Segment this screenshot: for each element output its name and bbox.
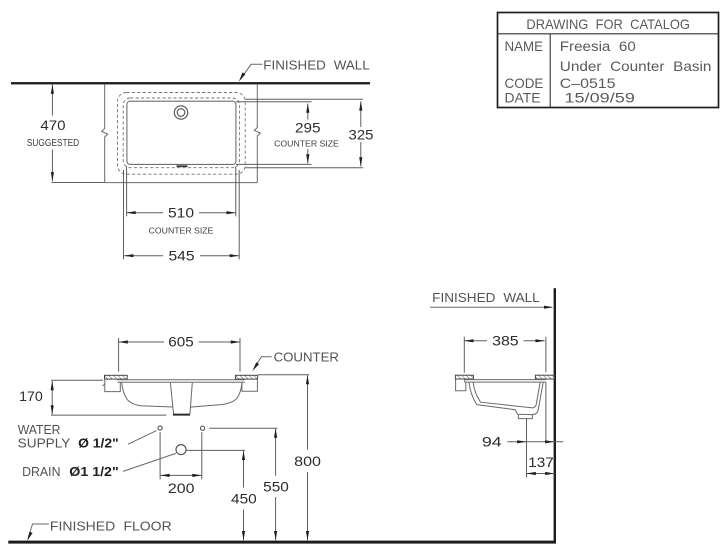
svg-text:450: 450: [231, 491, 257, 506]
svg-text:COUNTER: COUNTER: [274, 350, 339, 365]
svg-text:94: 94: [482, 434, 502, 449]
svg-text:137: 137: [528, 455, 554, 470]
svg-text:Ø1 1/2": Ø1 1/2": [69, 464, 118, 479]
svg-text:470: 470: [40, 118, 65, 133]
svg-text:Freesia 60: Freesia 60: [560, 38, 636, 54]
svg-text:510: 510: [168, 205, 194, 220]
svg-text:DRAIN: DRAIN: [22, 464, 60, 479]
svg-text:Ø 1/2": Ø 1/2": [78, 436, 119, 451]
svg-text:DRAWING FOR CATALOG: DRAWING FOR CATALOG: [526, 16, 690, 32]
svg-text:Under Counter Basin: Under Counter Basin: [560, 58, 712, 74]
svg-text:FINISHED WALL: FINISHED WALL: [263, 57, 369, 72]
svg-text:800: 800: [294, 454, 321, 469]
svg-text:200: 200: [168, 481, 195, 496]
svg-text:325: 325: [349, 127, 374, 142]
svg-text:DATE: DATE: [505, 89, 541, 105]
svg-text:SUPPLY: SUPPLY: [18, 436, 71, 451]
svg-text:FINISHED FLOOR: FINISHED FLOOR: [50, 518, 172, 533]
svg-text:FINISHED WALL: FINISHED WALL: [432, 290, 540, 305]
svg-text:15/09/59: 15/09/59: [564, 89, 635, 105]
svg-text:SUGGESTED: SUGGESTED: [27, 137, 80, 149]
svg-text:NAME: NAME: [505, 38, 544, 54]
svg-text:295: 295: [295, 120, 321, 135]
svg-text:605: 605: [168, 335, 193, 350]
svg-text:170: 170: [19, 389, 43, 404]
svg-text:COUNTER SIZE: COUNTER SIZE: [274, 138, 339, 148]
svg-text:COUNTER SIZE: COUNTER SIZE: [149, 225, 214, 235]
svg-text:385: 385: [492, 334, 519, 349]
svg-text:545: 545: [169, 248, 195, 263]
svg-text:550: 550: [263, 480, 289, 495]
